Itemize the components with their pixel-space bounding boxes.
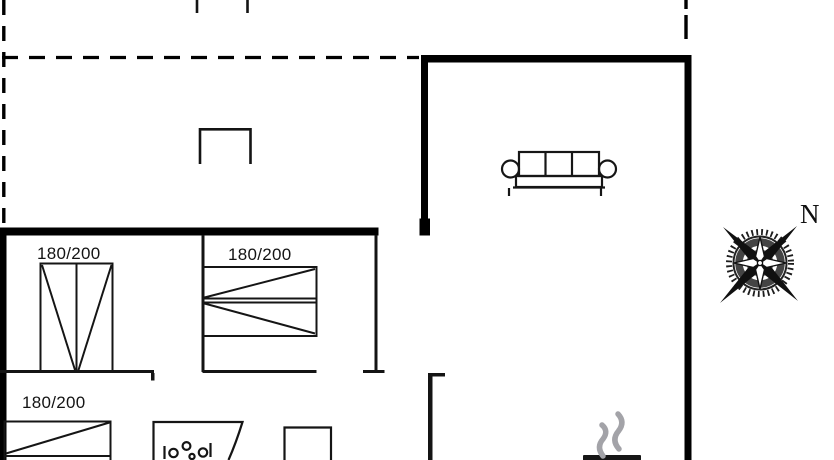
bed-size-label-bedroom2: 180/200 bbox=[228, 246, 292, 263]
double-bed-icon bbox=[41, 264, 113, 372]
floor-plan-drawing bbox=[0, 0, 834, 460]
double-bed-icon bbox=[204, 267, 317, 336]
compass-north-label: N bbox=[800, 201, 820, 228]
interior-walls bbox=[0, 235, 445, 460]
cabinet-icon bbox=[285, 428, 332, 460]
smoke-icon bbox=[600, 414, 622, 456]
bed-size-label-bedroom3: 180/200 bbox=[22, 394, 86, 411]
bed-size-label-bedroom1: 180/200 bbox=[37, 245, 101, 262]
sofa-icon bbox=[502, 152, 616, 196]
floor-plan: 180/200 180/200 180/200 N bbox=[0, 0, 834, 460]
wood-stove-icon bbox=[583, 455, 641, 460]
washbasin-icon bbox=[154, 422, 243, 460]
compass-rose-icon bbox=[720, 226, 798, 303]
exterior-walls bbox=[0, 55, 691, 460]
double-bed-icon bbox=[5, 422, 111, 460]
boundary-dashed-lines bbox=[2, 0, 686, 227]
chimney-outline bbox=[197, 0, 251, 164]
